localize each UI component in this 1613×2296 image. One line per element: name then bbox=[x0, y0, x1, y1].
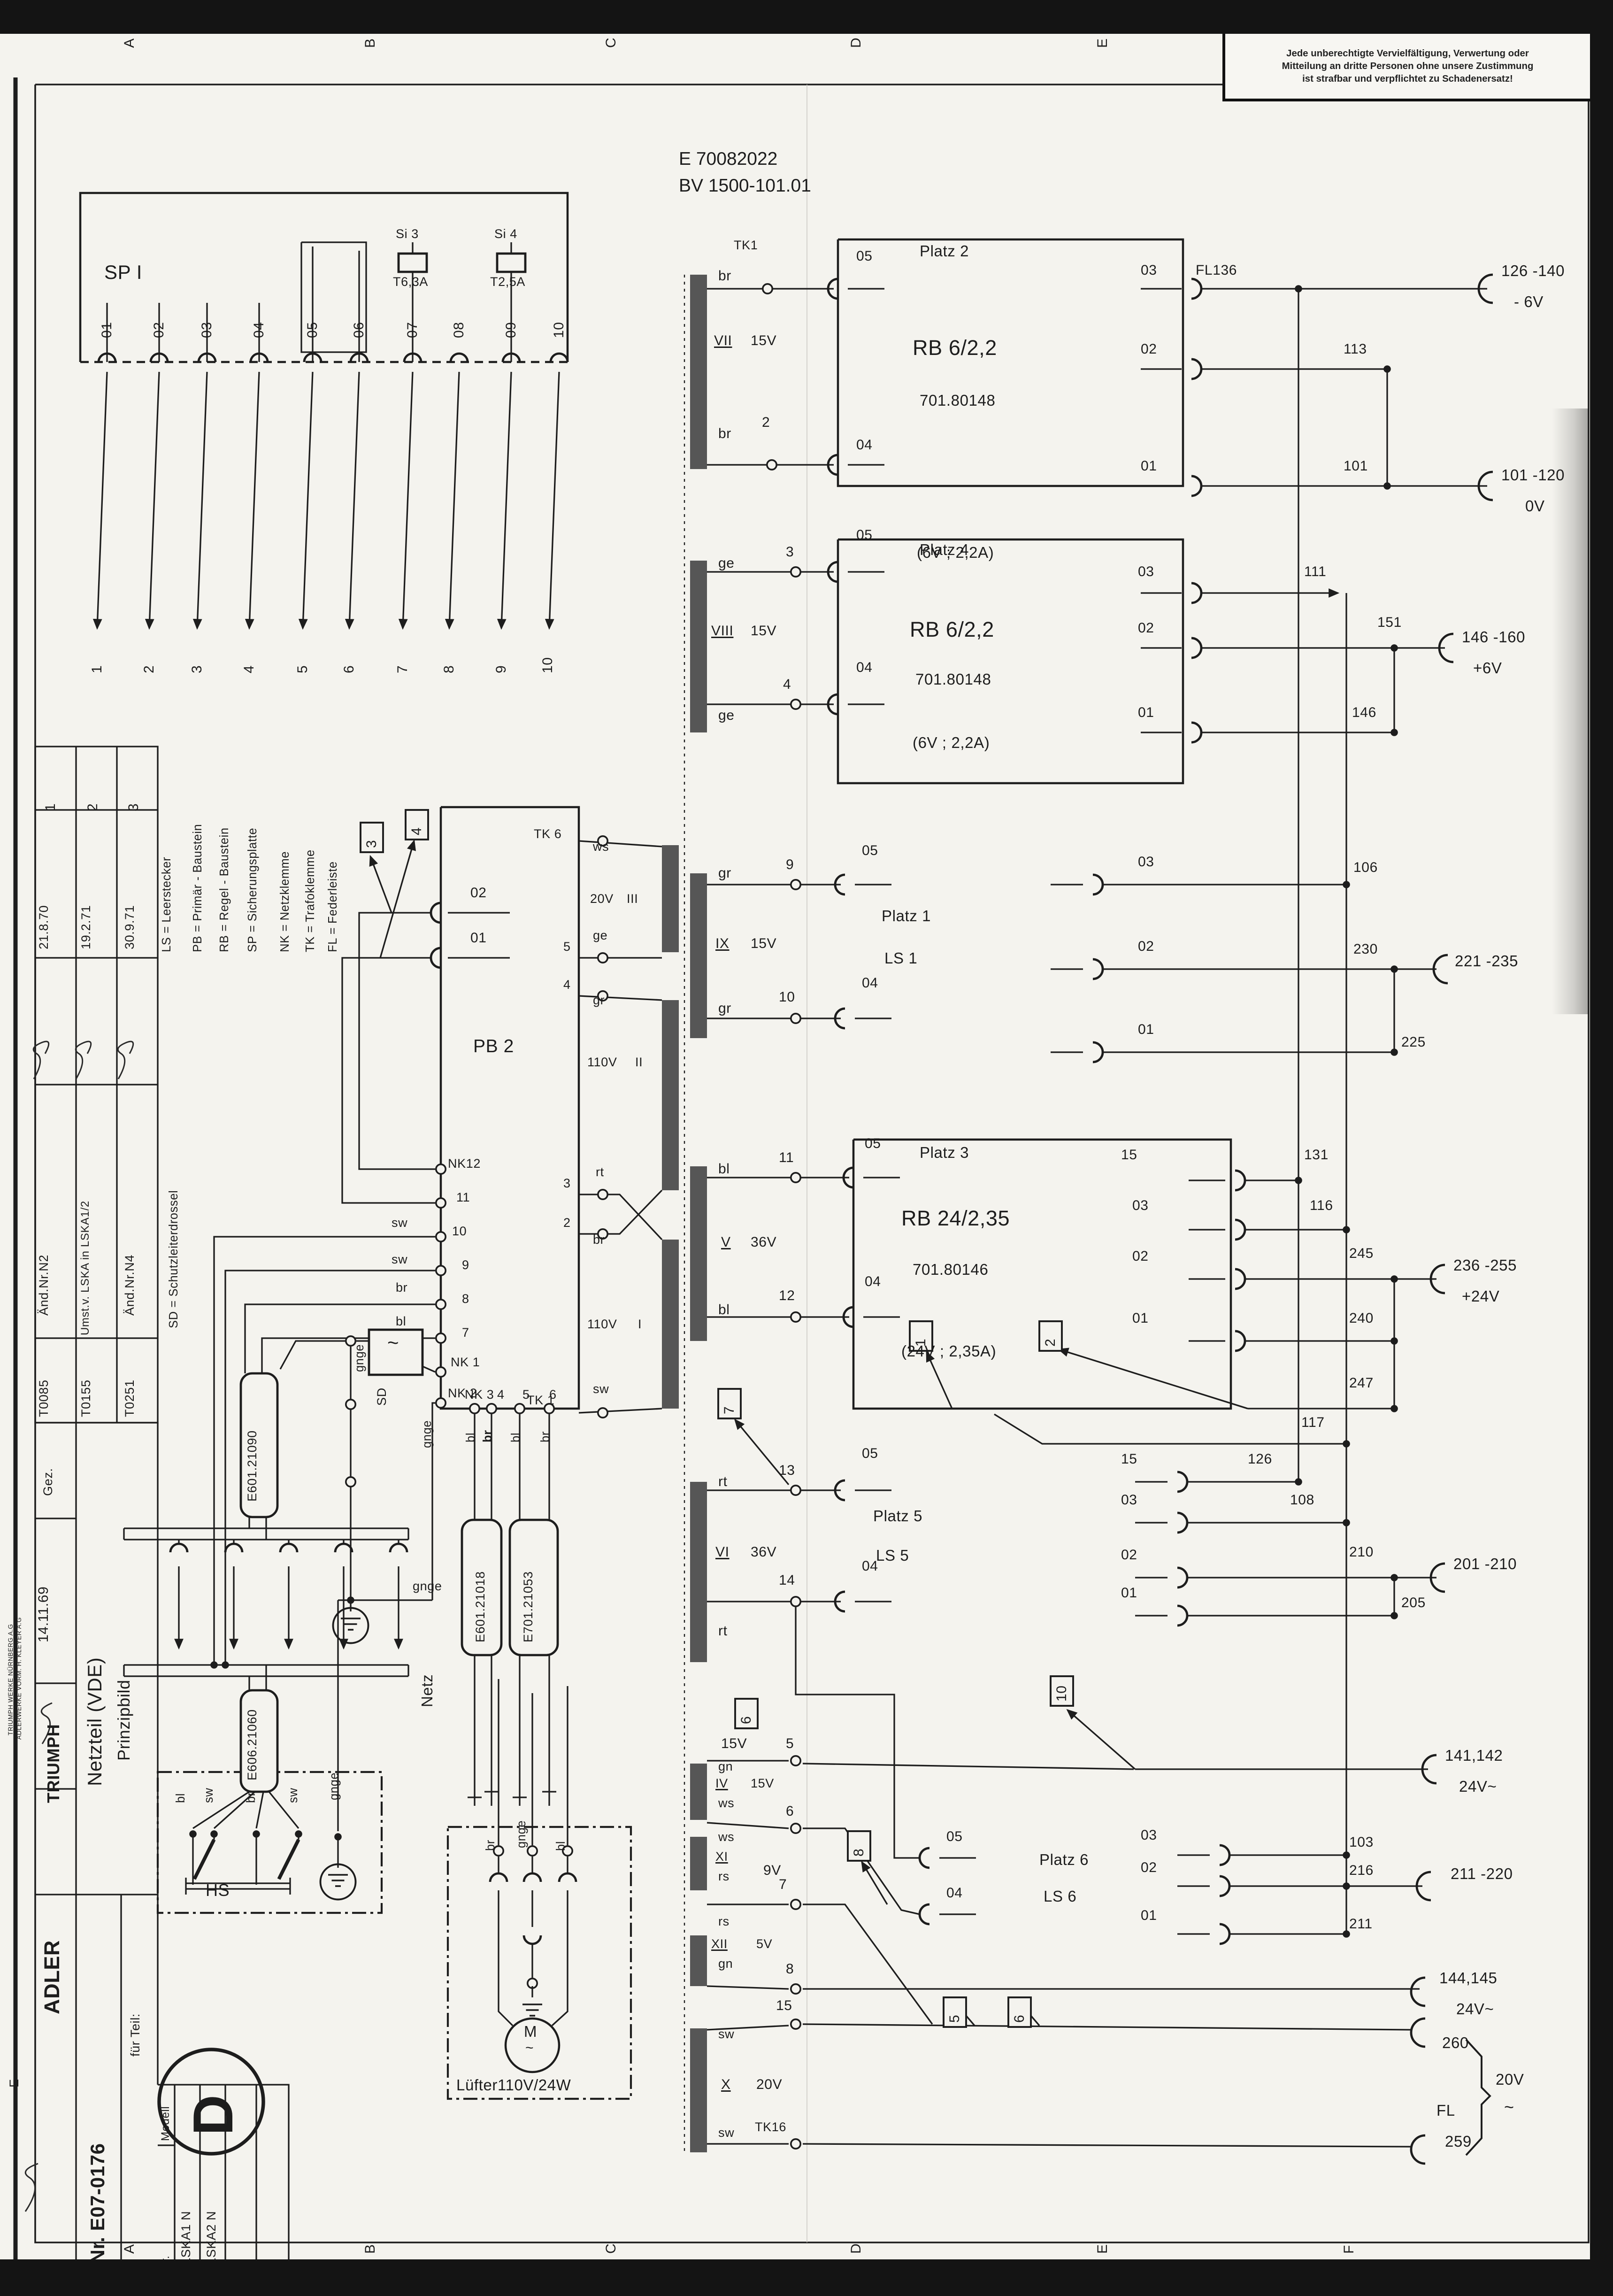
arrow bbox=[197, 372, 207, 628]
terminal-circle bbox=[436, 1398, 445, 1408]
connector-arc bbox=[1235, 1331, 1245, 1351]
label-iv: IV bbox=[715, 1778, 728, 1790]
label-rt: rt bbox=[718, 1626, 728, 1640]
label-19-2-71: 19.2.71 bbox=[80, 905, 93, 949]
label-änd-nr-n4: Änd.Nr.N4 bbox=[124, 1255, 137, 1316]
e-number: E 70082022 bbox=[679, 146, 811, 173]
component-box bbox=[497, 254, 525, 272]
connector-arc bbox=[431, 948, 441, 968]
connector-arc bbox=[451, 354, 468, 362]
label-rs: rs bbox=[718, 1916, 730, 1928]
label-v: V bbox=[721, 1237, 731, 1251]
terminal-circle bbox=[791, 1984, 800, 1994]
label-24v: 24V~ bbox=[1456, 2003, 1494, 2019]
connector-arc bbox=[1411, 1978, 1425, 2006]
label-e: E bbox=[1097, 2244, 1111, 2254]
junction-dot bbox=[1343, 1851, 1350, 1859]
wire bbox=[342, 958, 435, 1203]
label-br: br bbox=[718, 428, 731, 442]
label-nk-1: NK 1 bbox=[451, 1356, 480, 1369]
label-e: E bbox=[8, 2079, 21, 2088]
label-rt: rt bbox=[718, 1476, 728, 1490]
label-gr: gr bbox=[718, 868, 731, 882]
wire bbox=[499, 1890, 513, 2026]
label-platz-5: Platz 5 bbox=[873, 1510, 922, 1526]
label-tk-1: TK 1 bbox=[527, 1395, 554, 1407]
label-tk1: TK1 bbox=[734, 239, 758, 252]
label-2: 2 bbox=[563, 1217, 571, 1230]
label-bl: bl bbox=[396, 1316, 406, 1328]
label-9: 9 bbox=[462, 1259, 469, 1272]
label-7: 7 bbox=[397, 665, 411, 673]
label-platz-1: Platz 1 bbox=[882, 910, 931, 925]
label-gr: gr bbox=[593, 994, 605, 1007]
label-e601-21090: E601.21090 bbox=[246, 1430, 259, 1502]
label-lska2-n: LSKA2 N bbox=[206, 2211, 218, 2265]
label-247: 247 bbox=[1349, 1378, 1374, 1392]
label-adlerwerke-vorm-h-kleyer-a-g: ADLERWERKE VORM. H. KLEYER A.G bbox=[17, 1617, 23, 1740]
label-04: 04 bbox=[856, 439, 873, 454]
terminal-circle bbox=[791, 1900, 800, 1909]
label-si-4: Si 4 bbox=[494, 228, 517, 241]
connector-arc bbox=[1191, 476, 1201, 496]
label-03: 03 bbox=[1138, 856, 1154, 871]
winding-bar bbox=[662, 1000, 679, 1190]
warning-line-3: ist strafbar und verpflichtet zu Schaden… bbox=[1225, 74, 1590, 84]
label-gnge: gnge bbox=[353, 1344, 366, 1372]
label-gr: gr bbox=[718, 1003, 731, 1017]
label-e701-21053: E701.21053 bbox=[522, 1571, 535, 1642]
label-230: 230 bbox=[1353, 944, 1378, 958]
terminal-circle bbox=[791, 1597, 800, 1606]
component-box bbox=[399, 254, 427, 272]
label-t0251: T0251 bbox=[124, 1379, 137, 1417]
label-f: F bbox=[1344, 2245, 1358, 2254]
label-108: 108 bbox=[1290, 1495, 1314, 1509]
label-05: 05 bbox=[862, 845, 878, 859]
label-c: C bbox=[606, 2243, 620, 2254]
label-05: 05 bbox=[862, 1448, 878, 1462]
label-5: 5 bbox=[297, 665, 311, 673]
wire bbox=[838, 539, 1183, 783]
terminal-circle bbox=[598, 1190, 607, 1199]
label-9: 9 bbox=[496, 665, 510, 673]
label-adler: ADLER bbox=[42, 1940, 63, 2014]
connector-arc bbox=[920, 1848, 929, 1868]
label-sw: sw bbox=[593, 1383, 609, 1396]
winding-bar bbox=[690, 1764, 707, 1820]
label-x: X bbox=[721, 2079, 731, 2093]
label-9v: 9V bbox=[763, 1865, 781, 1879]
label-sw: sw bbox=[203, 1788, 215, 1803]
torn-edge-bottom bbox=[0, 2259, 1613, 2296]
arrow bbox=[97, 372, 107, 628]
connector-arc bbox=[1191, 279, 1201, 299]
wire bbox=[803, 2024, 1411, 2030]
label-rs: rs bbox=[718, 1871, 730, 1883]
winding-bar bbox=[690, 275, 707, 469]
label-modell: Modell bbox=[161, 2106, 172, 2141]
junction-dot bbox=[1390, 1048, 1398, 1056]
label-36v: 36V bbox=[751, 1547, 776, 1561]
label-viii: VIII bbox=[711, 625, 733, 639]
junction-dot bbox=[189, 1830, 197, 1838]
terminal-circle bbox=[436, 1367, 445, 1377]
label-20v: 20V bbox=[590, 893, 614, 906]
terminal-circle bbox=[436, 1266, 445, 1275]
terminal-circle bbox=[436, 1300, 445, 1309]
arrow bbox=[149, 372, 159, 628]
schematic-sheet: ABCDEFABCDEF8765432SP I01020304050607080… bbox=[0, 0, 1613, 2296]
terminal-circle bbox=[346, 1400, 355, 1409]
connector-arc bbox=[920, 1904, 929, 1924]
label-101: 101 bbox=[1344, 461, 1368, 475]
winding-bar bbox=[690, 1482, 707, 1662]
label-b: B bbox=[365, 38, 379, 48]
arrow bbox=[1068, 1710, 1135, 1769]
label-04: 04 bbox=[862, 1561, 878, 1575]
label-04: 04 bbox=[856, 662, 873, 676]
label-bl: bl bbox=[555, 1841, 567, 1851]
copyright-warning: Jede unberechtigte Vervielfältigung, Ver… bbox=[1222, 31, 1593, 101]
connector-arc bbox=[1235, 1171, 1245, 1190]
label-gez: Gez. bbox=[42, 1468, 55, 1496]
ref-box-number-7: 7 bbox=[724, 1406, 738, 1414]
label-13: 13 bbox=[779, 1465, 795, 1479]
document-number: E 70082022 BV 1500-101.01 bbox=[679, 146, 811, 200]
connector-arc bbox=[1177, 1568, 1187, 1587]
label-gn: gn bbox=[718, 1761, 733, 1773]
label-5: 5 bbox=[786, 1738, 794, 1752]
connector-arc bbox=[1220, 1845, 1229, 1865]
bv-number: BV 1500-101.01 bbox=[679, 173, 811, 200]
label-01: 01 bbox=[1141, 461, 1157, 475]
label-sw: sw bbox=[392, 1217, 407, 1230]
label-t6-3a: T6,3A bbox=[393, 276, 428, 289]
label-hs: HS bbox=[206, 1882, 230, 1899]
label-8: 8 bbox=[444, 665, 458, 673]
label-ix: IX bbox=[715, 938, 730, 952]
winding-bar bbox=[690, 1837, 707, 1890]
label-bl: bl bbox=[465, 1433, 477, 1442]
label-platz-4: Platz 4 bbox=[920, 544, 969, 559]
label-1: 1 bbox=[92, 665, 106, 673]
arrow bbox=[449, 372, 459, 628]
wire bbox=[853, 1140, 1231, 1409]
label-lüfter110v-24w: Lüfter110V/24W bbox=[456, 2079, 571, 2095]
label-e601-21018: E601.21018 bbox=[475, 1571, 487, 1642]
label-pb-2: PB 2 bbox=[473, 1037, 514, 1055]
winding-lead bbox=[579, 1409, 662, 1413]
label-iii: III bbox=[627, 893, 638, 906]
label-rt: rt bbox=[596, 1166, 604, 1179]
label-36v: 36V bbox=[751, 1237, 776, 1251]
label-für-teil: für Teil: bbox=[130, 2013, 142, 2057]
wire bbox=[796, 1607, 920, 1858]
terminal-circle bbox=[791, 700, 800, 709]
junction-dot bbox=[1383, 482, 1391, 490]
connector-arc bbox=[1220, 1876, 1229, 1896]
label-gnge: gnge bbox=[515, 1820, 528, 1848]
ref-box-number-6: 6 bbox=[1014, 2015, 1028, 2023]
connector-arc bbox=[335, 1544, 352, 1552]
arrow bbox=[249, 372, 259, 628]
label-br: br bbox=[245, 1792, 257, 1803]
junction-dot bbox=[1343, 881, 1350, 888]
label-21-8-70: 21.8.70 bbox=[38, 905, 51, 949]
label-111: 111 bbox=[1304, 566, 1326, 580]
label-gnge: gnge bbox=[413, 1580, 442, 1593]
junction-dot bbox=[1343, 1440, 1350, 1448]
label-141-142: 141,142 bbox=[1445, 1749, 1503, 1765]
label-110v: 110V bbox=[587, 1318, 617, 1331]
label-01: 01 bbox=[1138, 707, 1154, 721]
label-umst-v-lska-in-lska1-2: Umst.v. LSKA in LSKA1/2 bbox=[80, 1201, 92, 1335]
label-d: D bbox=[186, 2095, 242, 2135]
label-24v: 24V~ bbox=[1459, 1780, 1497, 1796]
winding-bar bbox=[690, 1166, 707, 1341]
label-br: br bbox=[482, 1430, 494, 1442]
terminal-circle bbox=[346, 1477, 355, 1487]
label-10: 10 bbox=[452, 1225, 467, 1238]
terminal-circle bbox=[598, 1408, 607, 1418]
label-rb-regel-baustein: RB = Regel - Baustein bbox=[218, 827, 230, 952]
label-04: 04 bbox=[253, 322, 268, 338]
connector-arc bbox=[1177, 1606, 1187, 1626]
junction-dot bbox=[1343, 1882, 1350, 1890]
connector-arc bbox=[1411, 2019, 1425, 2047]
label-netzteil-vde: Netzteil (VDE) bbox=[84, 1657, 104, 1786]
winding-lead bbox=[579, 841, 662, 847]
label-ge: ge bbox=[718, 710, 735, 724]
label-fl: FL bbox=[1436, 2104, 1455, 2120]
terminal-circle bbox=[515, 1404, 524, 1413]
connector-arc bbox=[524, 1873, 541, 1882]
junction-dot bbox=[1390, 1405, 1398, 1412]
label-4: 4 bbox=[563, 979, 571, 992]
arrow bbox=[370, 856, 392, 913]
label-ls-5: LS 5 bbox=[876, 1549, 909, 1565]
junction-dot bbox=[210, 1661, 218, 1669]
label-sp-i: SP I bbox=[104, 262, 142, 282]
label-151: 151 bbox=[1377, 617, 1402, 631]
label-11: 11 bbox=[456, 1192, 470, 1204]
label-vii: VII bbox=[714, 335, 732, 349]
terminal-circle bbox=[791, 1824, 800, 1833]
junction-dot bbox=[1295, 285, 1302, 293]
label-fl-federleiste: FL = Federleiste bbox=[327, 861, 339, 952]
label-15v: 15V bbox=[751, 625, 776, 639]
warning-line-2: Mitteilung an dritte Personen ohne unser… bbox=[1225, 62, 1590, 71]
label-9: 9 bbox=[786, 859, 794, 873]
label-br: br bbox=[718, 270, 731, 285]
connector-arc bbox=[1191, 359, 1201, 379]
label-08: 08 bbox=[453, 322, 468, 338]
connector-arc bbox=[551, 354, 568, 362]
label-02: 02 bbox=[154, 322, 168, 338]
connector-arc bbox=[1191, 638, 1201, 658]
junction-dot bbox=[295, 1830, 302, 1838]
terminal-circle bbox=[791, 567, 800, 577]
label-701-80148: 701.80148 bbox=[915, 673, 991, 689]
label-4: 4 bbox=[244, 665, 258, 673]
label-04: 04 bbox=[946, 1888, 963, 1902]
label-ws: ws bbox=[593, 841, 609, 854]
label-02: 02 bbox=[1121, 1549, 1137, 1564]
torn-edge-top bbox=[0, 0, 1613, 34]
label-sw: sw bbox=[287, 1788, 300, 1803]
label-rb-6-2-2: RB 6/2,2 bbox=[913, 338, 997, 359]
label-a: A bbox=[124, 2244, 138, 2254]
terminal-circle bbox=[436, 1198, 445, 1208]
label-01: 01 bbox=[1141, 1910, 1157, 1924]
wire bbox=[359, 913, 435, 1169]
label-6v: +6V bbox=[1473, 662, 1502, 678]
label-146: 146 bbox=[1352, 707, 1376, 721]
label-8: 8 bbox=[786, 1964, 794, 1978]
label-15v: 15V bbox=[751, 335, 776, 349]
label-platz-3: Platz 3 bbox=[920, 1147, 969, 1162]
winding-lead bbox=[579, 996, 662, 1000]
label-2: 2 bbox=[144, 665, 158, 673]
wire bbox=[803, 2144, 1411, 2147]
label-d: D bbox=[851, 2243, 865, 2254]
label-gn: gn bbox=[718, 1958, 733, 1971]
winding-bar bbox=[662, 1240, 679, 1409]
label-: ~ bbox=[387, 1333, 399, 1352]
arrow bbox=[380, 841, 414, 958]
label-11: 11 bbox=[779, 1152, 794, 1166]
label-t2-5a: T2,5A bbox=[490, 276, 525, 289]
label-bl: bl bbox=[175, 1793, 187, 1803]
terminal-circle bbox=[791, 2019, 800, 2029]
connector-arc bbox=[1093, 959, 1103, 979]
label-24v: +24V bbox=[1462, 1290, 1499, 1306]
winding-bar bbox=[690, 1935, 707, 1986]
label-03: 03 bbox=[1138, 566, 1154, 580]
label-t0155: T0155 bbox=[80, 1379, 93, 1417]
connector-arc bbox=[524, 1935, 541, 1944]
terminal-circle bbox=[436, 1232, 445, 1241]
label-sd-schutzleiterdrossel: SD = Schutzleiterdrossel bbox=[168, 1190, 180, 1328]
label-ls-1: LS 1 bbox=[884, 952, 917, 968]
junction-dot bbox=[1390, 644, 1398, 652]
label-6v: - 6V bbox=[1514, 296, 1544, 311]
label-701-80148: 701.80148 bbox=[920, 394, 995, 410]
terminal-circle bbox=[791, 2139, 800, 2149]
label-05: 05 bbox=[856, 251, 873, 265]
connector-arc bbox=[559, 1873, 576, 1882]
label-221-235: 221 -235 bbox=[1455, 955, 1518, 971]
label-01: 01 bbox=[1138, 1024, 1154, 1038]
label-236-255: 236 -255 bbox=[1453, 1259, 1517, 1275]
junction-dot bbox=[1390, 965, 1398, 973]
label-05: 05 bbox=[307, 322, 321, 338]
label-nk-netzklemme: NK = Netzklemme bbox=[279, 851, 291, 952]
label-pb-primär-baustein: PB = Primär - Baustein bbox=[192, 824, 204, 952]
label-prinzipbild: Prinzipbild bbox=[115, 1680, 132, 1761]
label-117: 117 bbox=[1301, 1417, 1325, 1431]
junction-dot bbox=[1390, 1337, 1398, 1345]
label-05: 05 bbox=[946, 1831, 963, 1845]
junction-dot bbox=[253, 1830, 260, 1838]
label-5: 5 bbox=[563, 941, 571, 954]
label-01: 01 bbox=[470, 932, 487, 947]
label-d: D bbox=[851, 38, 865, 48]
junction-dot bbox=[1343, 1226, 1350, 1233]
wire bbox=[441, 807, 579, 1409]
signature-mark bbox=[25, 2164, 38, 2211]
terminal-circle bbox=[791, 1173, 800, 1182]
label-14-11-69: 14.11.69 bbox=[38, 1587, 52, 1642]
label-b: B bbox=[365, 2244, 379, 2254]
wiring-layer bbox=[0, 0, 1613, 2296]
arrow bbox=[1059, 1349, 1248, 1409]
label-: ~ bbox=[525, 2042, 534, 2057]
label-platz-2: Platz 2 bbox=[920, 245, 969, 261]
label-02: 02 bbox=[1138, 623, 1154, 637]
junction-dot bbox=[1390, 1612, 1398, 1619]
connector-arc bbox=[1235, 1269, 1245, 1289]
label-259: 259 bbox=[1445, 2135, 1472, 2151]
label-205: 205 bbox=[1401, 1597, 1426, 1611]
label-260: 260 bbox=[1442, 2037, 1469, 2052]
label-tk-trafoklemme: TK = Trafoklemme bbox=[304, 849, 316, 952]
label-sd: SD bbox=[376, 1387, 389, 1406]
label-e: E bbox=[1097, 38, 1111, 48]
scan-smudge bbox=[1552, 408, 1589, 1014]
label-03: 03 bbox=[1141, 265, 1157, 279]
label-sp-sicherungsplatte: SP = Sicherungsplatte bbox=[246, 828, 259, 952]
terminal-circle bbox=[791, 880, 800, 889]
label-sw: sw bbox=[718, 2127, 734, 2140]
label-30-9-71: 30.9.71 bbox=[124, 905, 137, 949]
winding-bar bbox=[690, 873, 707, 1038]
junction-dot bbox=[1295, 1177, 1302, 1184]
arrow bbox=[303, 372, 313, 628]
label-03: 03 bbox=[1121, 1495, 1137, 1509]
terminal-circle bbox=[528, 1846, 537, 1856]
wire bbox=[194, 1840, 214, 1879]
label-02: 02 bbox=[1132, 1251, 1149, 1265]
terminal-circle bbox=[470, 1404, 479, 1413]
label-ls-leerstecker: LS = Leerstecker bbox=[161, 857, 173, 952]
label-gnge: gnge bbox=[328, 1772, 340, 1800]
label-225: 225 bbox=[1401, 1037, 1426, 1051]
label-3: 3 bbox=[192, 665, 206, 673]
label-131: 131 bbox=[1304, 1149, 1329, 1163]
winding-bar bbox=[662, 845, 679, 952]
junction-dot bbox=[210, 1830, 218, 1838]
label-7: 7 bbox=[462, 1327, 469, 1340]
label-xii: XII bbox=[711, 1938, 728, 1951]
label-1: 1 bbox=[45, 803, 59, 811]
label-110v: 110V bbox=[587, 1056, 617, 1069]
label-3: 3 bbox=[128, 803, 142, 811]
label-4: 4 bbox=[783, 679, 791, 693]
label-rb-24-2-35: RB 24/2,35 bbox=[901, 1209, 1010, 1230]
label-113: 113 bbox=[1344, 344, 1367, 358]
label-04: 04 bbox=[865, 1276, 881, 1290]
label-20v: 20V bbox=[756, 2079, 782, 2093]
label-15: 15 bbox=[1121, 1454, 1137, 1468]
signature-mark bbox=[118, 1041, 133, 1079]
label-2: 2 bbox=[87, 803, 101, 811]
label-si-3: Si 3 bbox=[396, 228, 419, 241]
label-gnge: gnge bbox=[421, 1420, 433, 1448]
label-t0085: T0085 bbox=[38, 1379, 51, 1417]
label-24v-2-35a: (24V ; 2,35A) bbox=[901, 1345, 996, 1361]
